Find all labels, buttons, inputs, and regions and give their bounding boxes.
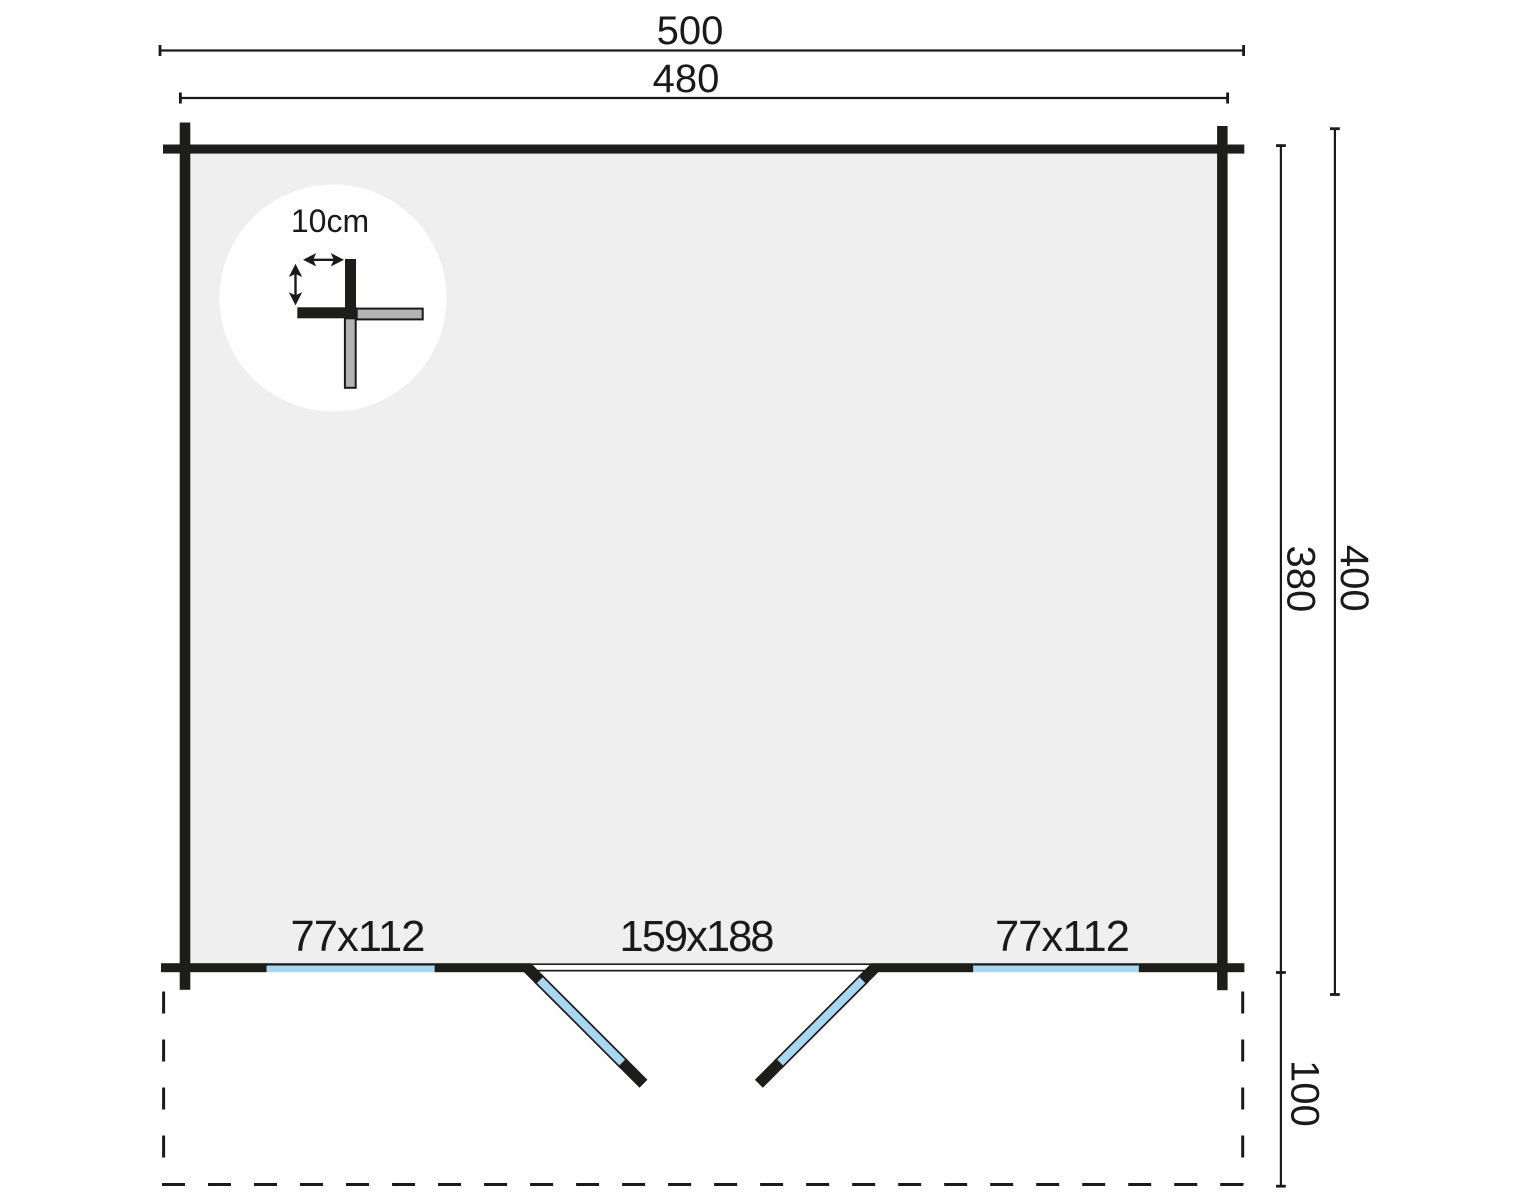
svg-text:77x112: 77x112 [290, 913, 424, 961]
svg-text:500: 500 [657, 9, 724, 53]
svg-text:100: 100 [1283, 1060, 1327, 1127]
svg-text:380: 380 [1279, 546, 1323, 613]
svg-text:159x188: 159x188 [620, 913, 774, 961]
svg-text:480: 480 [653, 57, 720, 101]
svg-text:400: 400 [1332, 545, 1376, 612]
svg-text:10cm: 10cm [291, 203, 369, 239]
svg-text:77x112: 77x112 [995, 913, 1129, 961]
